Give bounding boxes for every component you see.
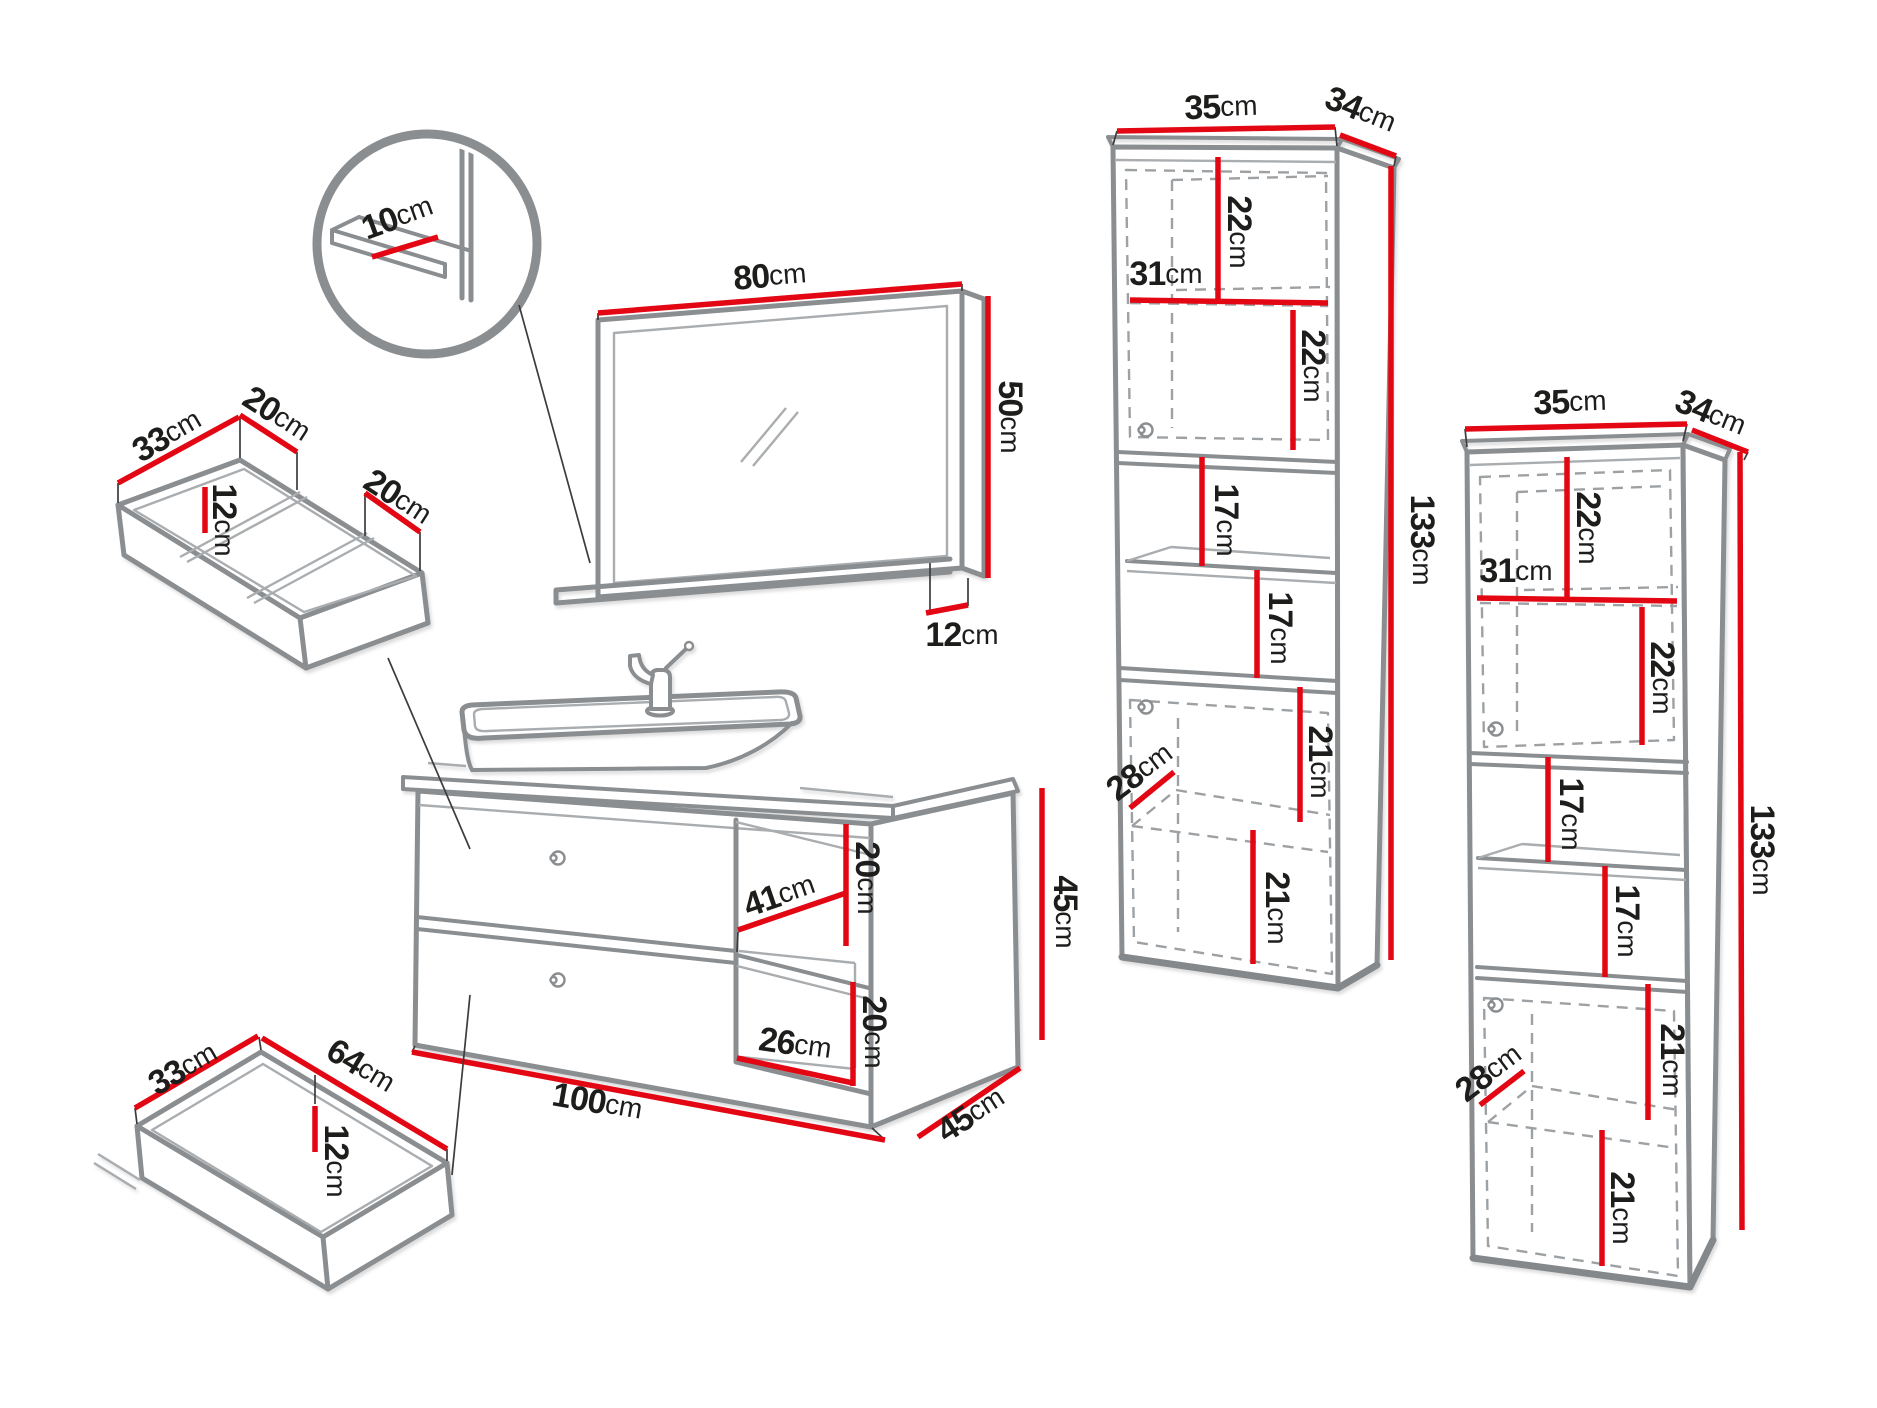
knob-icon <box>551 977 557 983</box>
dim-line-cab2-height <box>1740 452 1742 1230</box>
label-mirror-height: 50cm <box>991 380 1029 453</box>
label-cab2-mid-shelf-1: 17cm <box>1552 777 1590 850</box>
callout-line-detail-to-mirror <box>519 305 590 563</box>
label-cab1-top-lower-shelf: 22cm <box>1294 329 1332 402</box>
label-cab1-depth: 34cm <box>1320 79 1402 142</box>
label-cab1-mid-shelf-1: 17cm <box>1207 483 1245 556</box>
faucet-spout <box>630 655 653 684</box>
dim-line-cab1-width <box>1117 127 1335 131</box>
label-cab2-bottom-lower: 21cm <box>1603 1171 1641 1244</box>
vanity-side <box>871 793 1018 1127</box>
label-cab1-height: 133cm <box>1403 494 1441 585</box>
label-cab2-mid-shelf-2: 17cm <box>1608 884 1646 957</box>
drawer-knob <box>551 852 565 865</box>
magnifier-circle-icon <box>317 134 537 354</box>
label-cab1-top-shelf: 22cm <box>1220 195 1258 268</box>
mirror-side-panel <box>962 291 984 576</box>
door-knob <box>1489 999 1503 1012</box>
label-drawer-height: 12cm <box>317 1124 355 1197</box>
label-vanity-height: 45cm <box>1046 875 1084 948</box>
faucet-lever <box>666 648 687 668</box>
knob-icon <box>1489 1002 1495 1008</box>
door-knob <box>1139 424 1153 437</box>
label-cab1-inner-width: 31cm <box>1129 255 1202 293</box>
drawer-knob <box>551 974 565 987</box>
label-cab1-bottom-upper: 21cm <box>1301 725 1339 798</box>
label-mirror-width: 80cm <box>732 254 808 298</box>
mirror <box>556 291 984 603</box>
drawer-rails <box>94 1154 140 1189</box>
label-cab2-bottom-upper: 21cm <box>1653 1023 1691 1096</box>
dim-line-mirror-shelf <box>926 605 968 613</box>
dim-line-cab1-inner-width <box>1130 300 1328 303</box>
dim-line-cab2-width <box>1465 424 1687 429</box>
furniture-dimension-diagram: 80cm 50cm 12cm 10cm 33cm 20cm 12cm 20cm <box>0 0 1877 1408</box>
label-organizer-depth: 33cm <box>126 401 208 470</box>
label-vanity-lower-shelf: 20cm <box>855 995 893 1068</box>
knob-icon <box>1139 704 1145 710</box>
knob-icon <box>1139 427 1145 433</box>
mirror-frame <box>598 291 962 597</box>
label-organizer-right-width: 20cm <box>357 461 439 533</box>
vanity-unit <box>403 642 1018 1127</box>
label-drawer-width: 64cm <box>320 1031 402 1101</box>
label-mirror-shelf-depth: 12cm <box>925 616 998 654</box>
label-organizer-height: 12cm <box>205 483 243 556</box>
drawer <box>94 1052 452 1289</box>
faucet-lever-tip <box>685 642 693 650</box>
label-cab2-top-lower-shelf: 22cm <box>1643 641 1681 714</box>
knob-icon <box>1489 726 1495 732</box>
label-cab2-height: 133cm <box>1743 804 1781 895</box>
knob-icon <box>551 855 557 861</box>
cabinet-side <box>1337 148 1394 988</box>
label-cab1-mid-shelf-2: 17cm <box>1261 591 1299 664</box>
dim-line-cab2-inner-width <box>1477 598 1677 601</box>
diagram-canvas: 80cm 50cm 12cm 10cm 33cm 20cm 12cm 20cm <box>0 0 1877 1408</box>
label-cab1-bottom-lower: 21cm <box>1258 871 1296 944</box>
label-cab2-top-shelf: 22cm <box>1569 491 1607 564</box>
cabinet-side <box>1683 445 1725 1287</box>
label-cab2-inner-width: 31cm <box>1479 552 1552 590</box>
door-knob <box>1139 701 1153 714</box>
detail-circle: 10cm <box>317 134 537 354</box>
door-knob <box>1489 723 1503 736</box>
label-vanity-upper-shelf: 20cm <box>848 841 886 914</box>
label-cab2-width: 35cm <box>1533 382 1607 423</box>
label-cab1-width: 35cm <box>1184 87 1258 128</box>
